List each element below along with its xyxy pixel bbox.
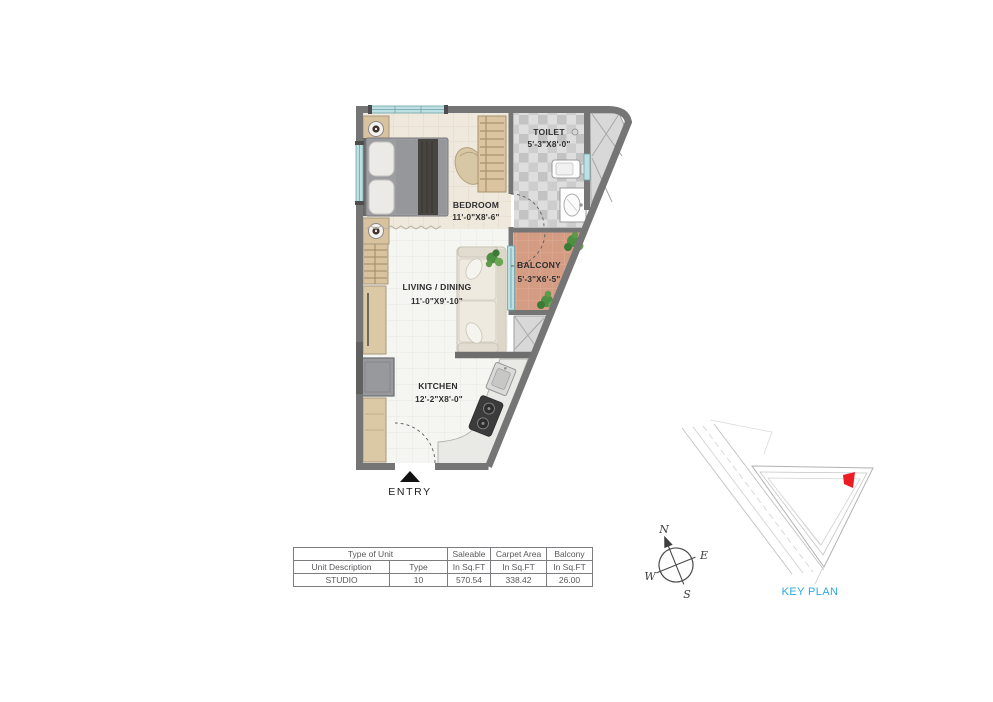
room-label-toilet: TOILET (533, 127, 565, 137)
room-dims-kitchen: 12'-2"X8'-0" (415, 395, 463, 404)
nightstand-bottom (363, 218, 389, 244)
toilet-wc (552, 160, 585, 178)
left-wall-panel (356, 342, 363, 394)
left-cabinet-lower (363, 398, 386, 462)
room-label-living: LIVING / DINING (403, 282, 472, 292)
compass-n: N (658, 523, 669, 536)
room-dims-balcony: 5'-3"X6'-5" (518, 275, 561, 284)
table-header-saleable: Saleable (448, 548, 491, 561)
compass-north-arrow-icon (660, 534, 673, 548)
left-shelf-unit (363, 244, 388, 284)
table-cell-unit-description: STUDIO (294, 574, 390, 587)
room-dims-bedroom: 11'-0"X8'-6" (452, 213, 499, 222)
room-dims-living: 11'-0"X9'-10" (411, 297, 463, 306)
unit-table: Type of Unit Saleable Carpet Area Balcon… (293, 547, 593, 587)
table-header-sqft-2: In Sq.FT (491, 561, 547, 574)
room-label-bedroom: BEDROOM (453, 200, 499, 210)
table-header-balcony: Balcony (547, 548, 593, 561)
room-label-balcony: BALCONY (517, 260, 561, 270)
table-header-unit-description: Unit Description (294, 561, 390, 574)
entry-label: ENTRY (388, 486, 431, 498)
table-cell-saleable: 570.54 (448, 574, 491, 587)
floor-plan: BEDROOM 11'-0"X8'-6" TOILET 5'-3"X8'-0" … (348, 96, 654, 500)
table-cell-balcony: 26.00 (547, 574, 593, 587)
key-plan-label: KEY PLAN (782, 586, 839, 598)
table-cell-carpet-area: 338.42 (491, 574, 547, 587)
shower-drain-icon (572, 129, 578, 135)
table-header-sqft-3: In Sq.FT (547, 561, 593, 574)
key-plan-road (682, 424, 824, 574)
page-canvas: BEDROOM 11'-0"X8'-6" TOILET 5'-3"X8'-0" … (0, 0, 993, 702)
key-plan: KEY PLAN (672, 412, 892, 604)
wardrobe (478, 116, 506, 192)
key-plan-site (752, 466, 873, 584)
table-header-type-of-unit: Type of Unit (294, 548, 448, 561)
key-plan-context-lines (710, 420, 772, 454)
table-header-carpet-area: Carpet Area (491, 548, 547, 561)
table-header-type: Type (390, 561, 448, 574)
bed (362, 138, 448, 216)
table-row: STUDIO 10 570.54 338.42 26.00 (294, 574, 593, 587)
toilet-sink (560, 188, 586, 222)
compass-w: W (644, 570, 657, 583)
fridge (361, 358, 394, 396)
left-wardrobe (363, 286, 386, 354)
entry-arrow-icon (400, 471, 420, 482)
key-plan-unit-highlight (843, 472, 855, 488)
room-dims-toilet: 5'-3"X8'-0" (528, 140, 571, 149)
table-header-sqft-1: In Sq.FT (448, 561, 491, 574)
duct-shaft-top (590, 113, 625, 208)
room-label-kitchen: KITCHEN (418, 381, 458, 391)
table-cell-type: 10 (390, 574, 448, 587)
